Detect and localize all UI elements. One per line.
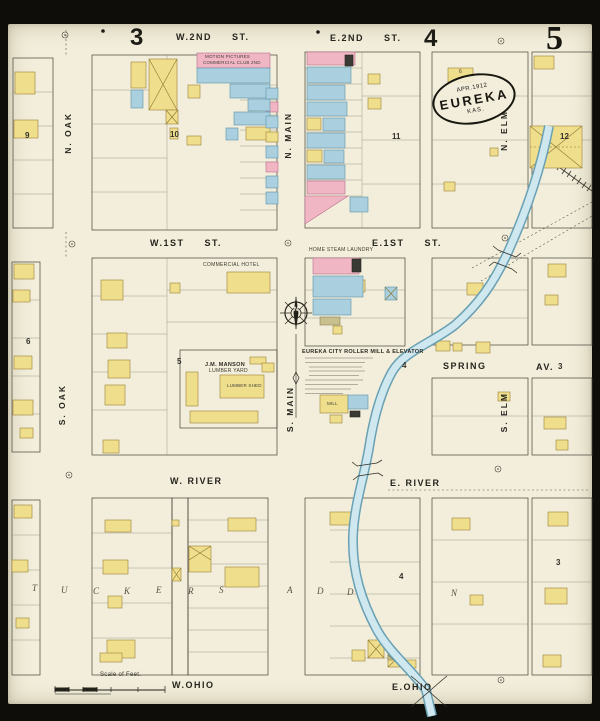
rect-shape xyxy=(170,283,180,293)
path-shape xyxy=(532,540,592,624)
addn-letter-d2: D xyxy=(347,587,354,597)
block-number-3-spring: 3 xyxy=(558,363,562,371)
label-manson-type: LUMBER YARD xyxy=(209,369,248,374)
addition-letter-r: R xyxy=(188,586,194,596)
compass-north-letter: N xyxy=(294,307,298,313)
scale-label: Scale of Feet. xyxy=(100,672,141,678)
rect-shape xyxy=(266,146,278,158)
rect-shape xyxy=(313,276,363,297)
rect-shape xyxy=(14,505,32,518)
circle-shape xyxy=(500,40,502,42)
path-shape xyxy=(13,92,53,194)
rect-shape xyxy=(266,116,278,128)
addn-letter-d1: D xyxy=(317,586,324,596)
path-shape xyxy=(330,530,420,658)
rect-shape xyxy=(197,68,270,83)
path-shape xyxy=(167,290,277,322)
rect-shape xyxy=(227,272,270,293)
addition-letter-u: U xyxy=(61,585,68,595)
circle-shape xyxy=(287,242,289,244)
rect-shape xyxy=(108,360,130,378)
label-commercial-hotel: COMMERCIAL HOTEL xyxy=(203,263,260,268)
street-w-2nd: W.2ND ST. xyxy=(176,33,250,42)
addition-letter-t: T xyxy=(32,583,37,593)
circle-shape xyxy=(504,237,506,239)
rect-shape xyxy=(262,363,274,372)
rect-shape xyxy=(230,84,270,98)
block-number-3-south: 3 xyxy=(556,559,560,567)
rect-shape xyxy=(55,688,69,691)
rect-shape xyxy=(556,440,568,450)
rect-shape xyxy=(172,520,179,526)
sheet-number: 5 xyxy=(546,22,563,56)
addn-letter-a: A xyxy=(287,585,293,595)
rect-shape xyxy=(108,596,122,608)
rect-shape xyxy=(266,88,278,99)
rect-shape xyxy=(307,133,345,148)
rect-shape xyxy=(13,400,33,415)
addition-letter-e: E xyxy=(156,585,162,595)
street-s-elm: S. ELM xyxy=(500,392,509,432)
circle-shape xyxy=(64,34,66,36)
street-w-ohio: W.OHIO xyxy=(172,681,215,690)
polygon-shape xyxy=(305,196,348,224)
rect-shape xyxy=(543,655,561,667)
circle-shape xyxy=(497,468,499,470)
street-w-1st: W.1ST ST. xyxy=(150,239,222,248)
rect-shape xyxy=(103,440,119,453)
rect-shape xyxy=(190,411,258,423)
rect-shape xyxy=(226,128,238,140)
rect-shape xyxy=(470,595,483,605)
rect-shape xyxy=(16,618,29,628)
rect-shape xyxy=(432,498,528,675)
street-s-main: S. MAIN xyxy=(286,386,295,432)
block-number-4-spring: 4 xyxy=(402,362,406,370)
rect-shape xyxy=(105,520,131,532)
rect-shape xyxy=(352,650,365,661)
rect-shape xyxy=(352,259,361,272)
sanborn-map-sheet: { "sheet": { "adjacent_left": "3", "adja… xyxy=(0,0,600,721)
map-drawing: N xyxy=(0,0,600,721)
rect-shape xyxy=(13,290,30,302)
circle-shape xyxy=(71,243,73,245)
mill-description-lines xyxy=(305,358,373,394)
rect-shape xyxy=(15,72,35,94)
rect-shape xyxy=(545,295,558,305)
rect-shape xyxy=(534,56,554,69)
rect-shape xyxy=(266,162,278,172)
street-n-oak: N. OAK xyxy=(64,112,73,154)
rect-shape xyxy=(101,280,123,300)
rect-shape xyxy=(307,181,345,194)
rect-shape xyxy=(12,560,28,572)
rect-shape xyxy=(330,512,352,525)
label-mill-title: EUREKA CITY ROLLER MILL & ELEVATOR xyxy=(302,350,424,356)
adjacent-sheet-right: 4 xyxy=(424,27,437,51)
block-number-9: 9 xyxy=(25,132,29,140)
rect-shape xyxy=(350,197,368,212)
rect-shape xyxy=(432,378,528,455)
rect-shape xyxy=(266,176,278,188)
rect-shape xyxy=(348,395,368,409)
rect-shape xyxy=(83,688,97,691)
rect-shape xyxy=(105,385,125,405)
rect-shape xyxy=(368,98,381,109)
street-n-elm: N. ELM xyxy=(500,110,509,151)
circle-shape xyxy=(68,474,70,476)
label-home-steam-laundry: HOME STEAM LAUNDRY xyxy=(309,248,373,253)
rect-shape xyxy=(333,326,342,334)
frame-buildings xyxy=(12,56,582,668)
rect-shape xyxy=(436,341,450,351)
block-number-4-south: 4 xyxy=(399,573,403,581)
rect-shape xyxy=(548,512,568,526)
street-e-1st: E.1ST ST. xyxy=(372,239,442,248)
rect-shape xyxy=(307,102,347,116)
river xyxy=(353,126,549,716)
label-motion-pictures: MOTION PICTURES xyxy=(205,55,250,60)
street-e-river: E. RIVER xyxy=(390,479,441,488)
rect-shape xyxy=(453,343,462,351)
path-shape xyxy=(353,126,549,716)
rect-shape xyxy=(548,264,566,277)
rect-shape xyxy=(131,62,146,88)
rect-shape xyxy=(266,132,278,142)
rect-shape xyxy=(14,356,32,369)
rect-shape xyxy=(368,74,380,84)
polygon-shape xyxy=(294,296,299,330)
block-number-10: 10 xyxy=(170,131,179,139)
street-e-2nd: E.2ND ST. xyxy=(330,34,402,43)
lot-number-6: 6 xyxy=(459,70,462,75)
rect-shape xyxy=(545,588,567,604)
addition-letter-k: K xyxy=(124,586,130,596)
rect-shape xyxy=(444,182,455,191)
block-number-6: 6 xyxy=(26,338,30,346)
scale-bar xyxy=(55,686,165,694)
addition-letter-c: C xyxy=(93,586,99,596)
rect-shape xyxy=(20,428,33,438)
street-spring: SPRING xyxy=(443,362,487,371)
rect-shape xyxy=(307,67,351,83)
rect-shape xyxy=(189,546,211,572)
rect-shape xyxy=(187,136,201,145)
rect-shape xyxy=(107,333,127,348)
rect-shape xyxy=(266,192,278,204)
addition-letter-s: S xyxy=(219,585,224,595)
circle-shape xyxy=(500,679,502,681)
circle-shape xyxy=(101,29,105,33)
rect-shape xyxy=(313,299,351,315)
rect-shape xyxy=(330,415,342,423)
street-n-main: N. MAIN xyxy=(284,112,293,159)
rect-shape xyxy=(345,55,353,66)
circle-shape xyxy=(316,30,320,34)
rect-shape xyxy=(323,118,345,131)
rect-shape xyxy=(186,372,198,406)
path-shape xyxy=(305,358,373,394)
rect-shape xyxy=(14,264,34,279)
street-s-oak: S. OAK xyxy=(58,384,67,425)
rect-shape xyxy=(490,148,498,156)
rect-shape xyxy=(188,85,200,98)
street-e-ohio: E.OHIO xyxy=(392,683,433,692)
rect-shape xyxy=(476,342,490,353)
rect-shape xyxy=(307,165,345,179)
adjacent-sheet-left: 3 xyxy=(130,26,143,50)
rect-shape xyxy=(307,118,321,130)
label-lumber-shed: LUMBER SHED xyxy=(227,384,262,389)
rect-shape xyxy=(452,518,470,530)
rect-shape xyxy=(544,417,566,429)
label-mill: MILL xyxy=(327,402,338,407)
block-number-12: 12 xyxy=(560,133,569,141)
block-number-11: 11 xyxy=(392,133,400,141)
rect-shape xyxy=(248,99,270,111)
street-spring-av: AV. xyxy=(536,363,554,372)
rect-shape xyxy=(307,85,345,100)
rect-shape xyxy=(100,653,122,662)
addn-letter-n: N xyxy=(451,588,457,598)
rect-shape xyxy=(234,112,270,125)
path-shape xyxy=(432,540,528,624)
rect-shape xyxy=(131,90,143,108)
block-number-5: 5 xyxy=(177,358,181,366)
rect-shape xyxy=(307,150,322,162)
rect-shape xyxy=(228,518,256,531)
rect-shape xyxy=(225,567,259,587)
rect-shape xyxy=(324,150,344,163)
rect-shape xyxy=(350,411,360,417)
street-w-river: W. RIVER xyxy=(170,477,223,486)
buildings-layer xyxy=(12,52,582,668)
rect-shape xyxy=(320,317,340,325)
rect-shape xyxy=(103,560,128,574)
label-commercial-club: COMMERCIAL CLUB 2ND xyxy=(203,61,261,66)
